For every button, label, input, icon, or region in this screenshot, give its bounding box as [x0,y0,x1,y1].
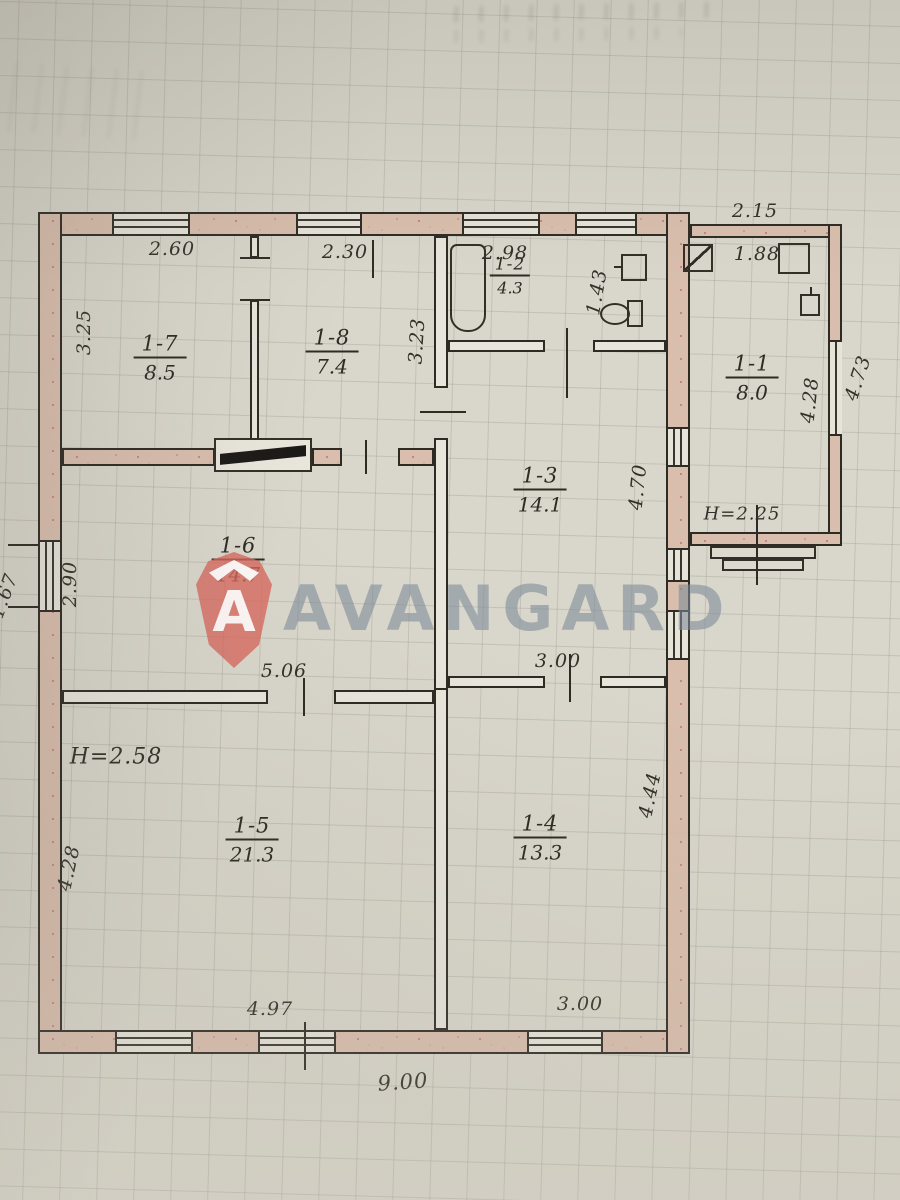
window [830,340,842,436]
dim-top-1-2: 2.98 [482,242,528,264]
partition-1-7-1-8 [250,300,259,448]
door-tick [420,411,466,413]
window [258,1032,336,1052]
dim-annex-inner-top: 1.88 [734,243,780,265]
window [40,540,60,612]
annex-wall-top [690,224,842,238]
door-tick [566,328,568,398]
dim-bottom-1-4: 3.00 [557,993,603,1015]
boiler-icon [800,294,820,316]
room-area: 7.4 [306,355,359,379]
partition-1-2-1-3 [593,340,666,352]
room-label-1-1: 1-1 8.0 [726,352,779,405]
partition-spine [434,438,448,690]
annex-wall-bottom [690,532,842,546]
partition-1-2-1-3 [448,340,545,352]
room-area: 13.3 [514,841,567,865]
cabinet-icon [778,243,810,274]
room-label-1-6: 1-6 14.7 [212,534,265,587]
entrance-steps [710,546,816,559]
window-sill-line [8,606,40,608]
partition-top-1-6 [312,448,342,466]
door-tick [303,678,305,716]
partition-1-3-1-4 [600,676,666,688]
window [527,1032,603,1052]
room-number: 1-3 [514,464,567,491]
dim-left-1-6: 2.90 [59,561,81,607]
partition-top-1-6 [62,448,215,466]
partition-spine [434,236,448,388]
window-sill-line [8,544,40,546]
dim-right-1-3: 4.70 [625,463,652,511]
window [115,1032,193,1052]
window [462,214,540,234]
boiler-tick [810,287,812,296]
partition-top-1-6 [398,448,434,466]
floor-plan: 1-7 8.5 1-8 7.4 1-2 4.3 1-1 8.0 1-3 14.1… [0,0,900,1200]
room-label-1-5: 1-5 21.3 [226,814,279,867]
dim-bottom-1-3: 3.00 [535,650,581,672]
room-label-1-8: 1-8 7.4 [306,326,359,379]
partition-1-7-1-8 [250,236,259,258]
window [296,214,362,234]
window [112,214,190,234]
window [668,427,688,467]
door-tick [365,440,367,474]
partition-1-5-1-4 [434,688,448,1030]
room-number: 1-6 [212,534,265,561]
room-number: 1-5 [226,814,279,841]
dim-bottom-total: 9.00 [377,1068,429,1095]
dim-bottom-1-5: 4.97 [247,998,293,1020]
dim-top-1-7: 2.60 [149,238,195,260]
dim-main-height: H=2.58 [70,745,163,770]
dim-annex-top: 2.15 [732,200,778,222]
room-area: 8.5 [134,361,187,385]
entrance-steps [722,559,804,571]
dim-right-1-4: 4.44 [634,770,665,820]
stove-icon [214,438,312,472]
room-label-1-7: 1-7 8.5 [134,332,187,385]
main-wall-left [38,212,62,1054]
window [668,610,688,660]
dim-top-1-8: 2.30 [322,241,368,263]
scanned-floor-plan-photo: { "watermark": { "brand": "AVANGARD", "l… [0,0,900,1200]
dim-annex-right-inner: 4.28 [797,376,824,424]
room-number: 1-4 [514,812,567,839]
partition-1-3-1-4 [448,676,545,688]
dimension-tick [372,240,374,278]
room-number: 1-7 [134,332,187,359]
water-heater-icon [621,254,647,281]
room-number: 1-1 [726,352,779,379]
window [668,548,688,582]
dim-left-total: 11.67 [0,570,22,633]
dimension-tick [304,1022,306,1070]
door-tick [240,257,270,259]
room-area: 21.3 [226,843,279,867]
dim-annex-height: H=2.25 [704,504,781,525]
room-label-1-3: 1-3 14.1 [514,464,567,517]
toilet-tank-icon [627,300,643,327]
door-tick [240,299,270,301]
dim-right-1-8: 3.23 [404,317,429,365]
dim-bottom-1-6: 5.06 [261,660,307,682]
dim-annex-right-outer: 4.73 [840,353,875,404]
shower-tray-icon [683,244,713,272]
room-area: 8.0 [726,381,779,405]
dim-left-1-7: 3.25 [73,309,95,355]
room-area: 14.1 [514,493,567,517]
bathtub-icon [450,244,486,332]
partition-1-6-1-5 [62,690,268,704]
room-area: 14.7 [212,563,265,587]
room-number: 1-8 [306,326,359,353]
stove-fill [220,444,306,466]
partition-1-6-1-5 [334,690,434,704]
room-area: 4.3 [490,279,530,298]
room-label-1-4: 1-4 13.3 [514,812,567,865]
heater-tick [614,266,623,268]
window [575,214,637,234]
